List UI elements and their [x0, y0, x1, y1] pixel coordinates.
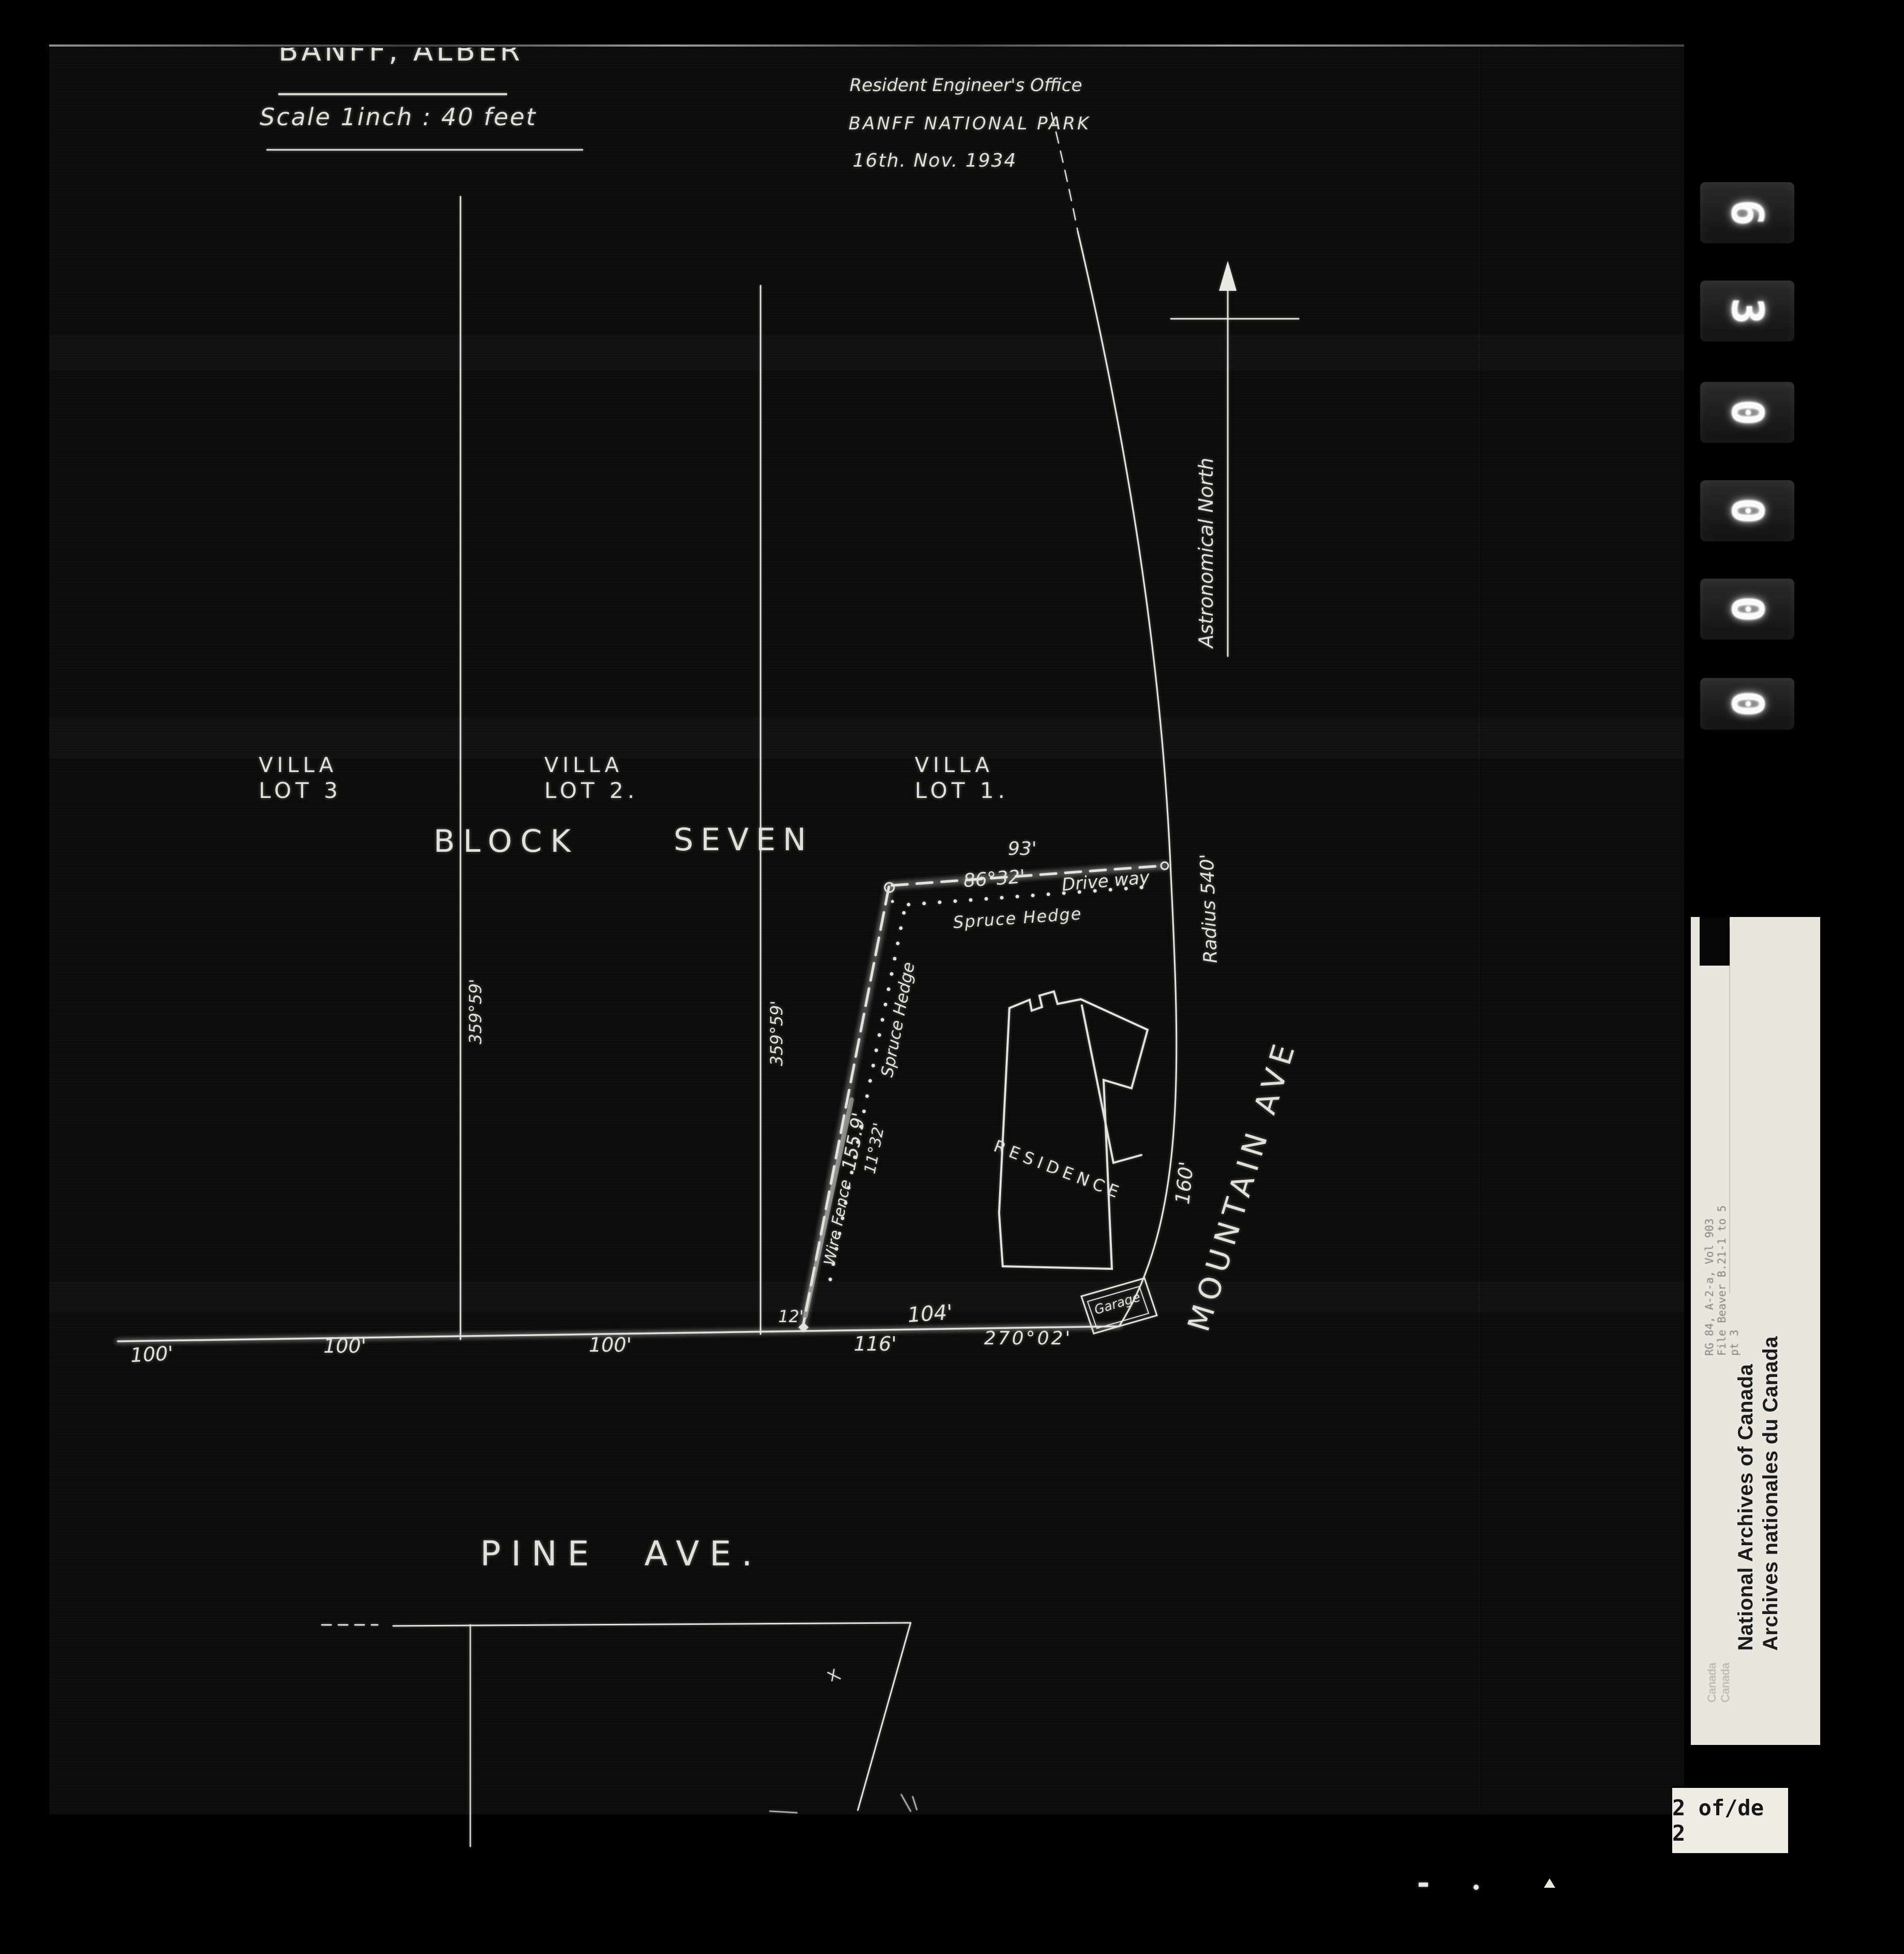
bearing-east-line: 359°59' — [768, 963, 786, 1066]
block-word: BLOCK — [434, 825, 579, 858]
villa-lot-2-label: VILLA LOT 2. — [544, 754, 638, 802]
villa-lot-2-line2: LOT 2. — [544, 779, 638, 802]
archives-reference-line: pt 3 — [1728, 1159, 1741, 1356]
counter-cell: 6 — [1700, 182, 1794, 243]
villa-lot-2-line1: VILLA — [544, 754, 638, 776]
archives-reference-line: RG 84, A-2-a, Vol 903 — [1703, 1159, 1716, 1356]
counter-cell: 0 — [1700, 579, 1794, 640]
engineer-office-line: Resident Engineer's Office — [850, 77, 1082, 95]
pine-ave-label: PINE AVE. — [480, 1536, 763, 1572]
film-scratches — [770, 1795, 917, 1813]
corner-dot — [891, 900, 894, 903]
bottom-right-length-label: 104' — [907, 1301, 954, 1326]
scale-underline — [266, 149, 583, 151]
counter-digit: 0 — [1722, 498, 1773, 524]
counter-cell: 0 — [1700, 480, 1794, 541]
survey-plan-linework — [0, 0, 1904, 1954]
bottom-tick-mark — [828, 1669, 840, 1681]
page-number-box: 2 of/de 2 — [1672, 1788, 1788, 1853]
counter-cell: 0 — [1700, 382, 1794, 443]
astronomical-north-label: Astronomical North — [1196, 374, 1217, 648]
villa-lot-1-line2: LOT 1. — [915, 779, 1009, 802]
title-clip: BANFF, ALBERTA. — [278, 48, 522, 92]
page-number-label: 2 of/de 2 — [1672, 1795, 1788, 1846]
baseline-measure-3: 100' — [589, 1335, 632, 1356]
counter-digit: 0 — [1722, 596, 1773, 623]
residence-outline — [999, 991, 1148, 1269]
villa-lot-1-label: VILLA LOT 1. — [915, 754, 1009, 802]
bottom-bearing-label: 270°02' — [984, 1329, 1072, 1349]
title-underline — [278, 93, 507, 95]
film-edge-mark — [1474, 1885, 1479, 1890]
engineer-date-line: 16th. Nov. 1934 — [853, 151, 1017, 171]
villa-lot-3-label: VILLA LOT 3 — [259, 754, 342, 802]
mountain-ave-curve — [1078, 231, 1177, 1326]
counter-cell: 0 — [1700, 678, 1794, 730]
top-length-label: 93' — [1008, 839, 1037, 859]
offset-left-label: 12' — [778, 1308, 804, 1326]
top-bearing-label: 86°32' — [963, 867, 1026, 891]
counter-digit: 3 — [1722, 298, 1773, 324]
archives-faint-line: Canada — [1705, 1573, 1719, 1703]
strip-notch — [1700, 917, 1730, 966]
counter-cell: 3 — [1700, 280, 1794, 342]
archives-faint-line: Canada — [1719, 1573, 1732, 1703]
baseline-measure-1: 100' — [130, 1343, 174, 1366]
page-title: BANFF, ALBERTA. — [278, 48, 522, 67]
counter-digit: 6 — [1722, 200, 1773, 226]
seven-word: SEVEN — [674, 824, 813, 856]
baseline-measure-2: 100' — [323, 1336, 366, 1357]
film-edge-mark — [1419, 1883, 1428, 1887]
counter-digit: 0 — [1722, 691, 1773, 717]
archives-french-line: Archives nationales du Canada — [1759, 1133, 1782, 1651]
villa-lot-3-line2: LOT 3 — [259, 779, 342, 802]
villa-lot-3-line1: VILLA — [259, 754, 342, 776]
bearing-west-line: 359°59' — [467, 941, 485, 1044]
north-arrow-head — [1219, 261, 1237, 291]
bottom-diagonal-line — [858, 1623, 911, 1810]
archives-reference-line: File Beaver B.21-1 to 5 — [1716, 1159, 1728, 1356]
engineer-park-line: BANFF NATIONAL PARK — [849, 115, 1091, 134]
film-edge-mark — [1544, 1878, 1555, 1888]
bottom-length-label: 116' — [854, 1334, 897, 1355]
villa-lot-1-line1: VILLA — [915, 754, 1009, 776]
counter-digit: 0 — [1722, 399, 1773, 426]
scale-note: Scale 1inch : 40 feet — [260, 105, 537, 129]
microfilm-scan: BANFF, ALBERTA. Scale 1inch : 40 feet Re… — [0, 0, 1904, 1954]
